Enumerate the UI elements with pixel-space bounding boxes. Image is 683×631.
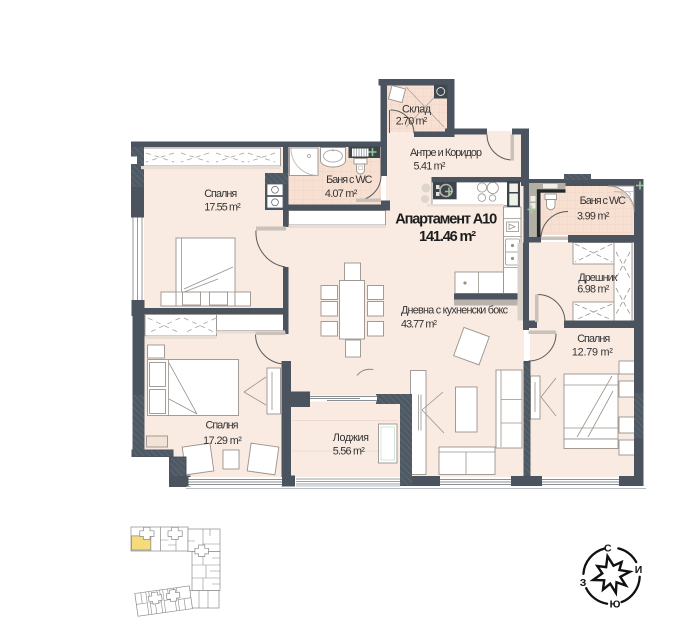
svg-text:Дрешник: Дрешник bbox=[578, 272, 617, 284]
svg-text:Спалня: Спалня bbox=[204, 188, 237, 200]
svg-text:Склад: Склад bbox=[402, 104, 432, 116]
svg-text:Ю: Ю bbox=[610, 599, 621, 611]
svg-text:З: З bbox=[580, 577, 587, 589]
svg-text:6.98 m²: 6.98 m² bbox=[577, 284, 609, 296]
svg-text:Апартамент А10: Апартамент А10 bbox=[395, 211, 497, 227]
svg-text:5.41 m²: 5.41 m² bbox=[414, 161, 446, 173]
svg-text:141.46 m²: 141.46 m² bbox=[419, 229, 476, 245]
svg-text:Спалня: Спалня bbox=[206, 420, 239, 432]
svg-text:Спалня: Спалня bbox=[577, 333, 610, 345]
svg-text:5.56 m²: 5.56 m² bbox=[333, 446, 365, 458]
svg-text:4.07 m²: 4.07 m² bbox=[325, 188, 358, 200]
svg-text:12.79 m²: 12.79 m² bbox=[572, 347, 613, 359]
svg-text:17.55 m²: 17.55 m² bbox=[204, 202, 241, 214]
svg-text:Баня с WC: Баня с WC bbox=[580, 195, 626, 207]
svg-text:Баня с WC: Баня с WC bbox=[326, 174, 372, 186]
svg-text:2.70 m²: 2.70 m² bbox=[396, 116, 428, 128]
svg-text:3.99 m²: 3.99 m² bbox=[577, 211, 610, 223]
svg-text:С: С bbox=[604, 542, 612, 554]
svg-text:Дневна с кухненски бокс: Дневна с кухненски бокс bbox=[401, 305, 509, 317]
svg-text:И: И bbox=[635, 564, 643, 576]
svg-text:Лоджия: Лоджия bbox=[333, 432, 369, 444]
svg-text:Антре и Коридор: Антре и Коридор bbox=[410, 147, 482, 159]
svg-text:43.77 m²: 43.77 m² bbox=[401, 318, 437, 330]
svg-text:17.29 m²: 17.29 m² bbox=[203, 435, 242, 447]
